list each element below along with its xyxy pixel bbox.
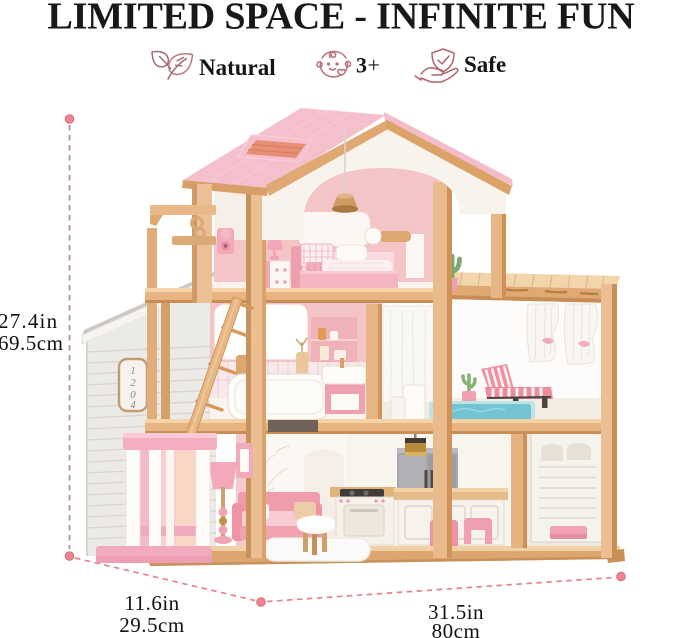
svg-text:2: 2 <box>130 377 136 389</box>
svg-text:3+: 3+ <box>356 53 380 78</box>
svg-text:Natural: Natural <box>199 55 276 80</box>
svg-text:69.5cm: 69.5cm <box>0 331 63 355</box>
svg-text:Safe: Safe <box>464 52 506 77</box>
svg-text:80cm: 80cm <box>432 619 481 638</box>
svg-text:1: 1 <box>130 365 136 377</box>
svg-text:27.4in: 27.4in <box>0 309 58 333</box>
svg-text:LIMITED SPACE - INFINITE FUN: LIMITED SPACE - INFINITE FUN <box>48 0 635 38</box>
svg-text:29.5cm: 29.5cm <box>119 613 184 637</box>
svg-text:11.6in: 11.6in <box>124 591 179 615</box>
svg-text:4: 4 <box>130 399 136 411</box>
